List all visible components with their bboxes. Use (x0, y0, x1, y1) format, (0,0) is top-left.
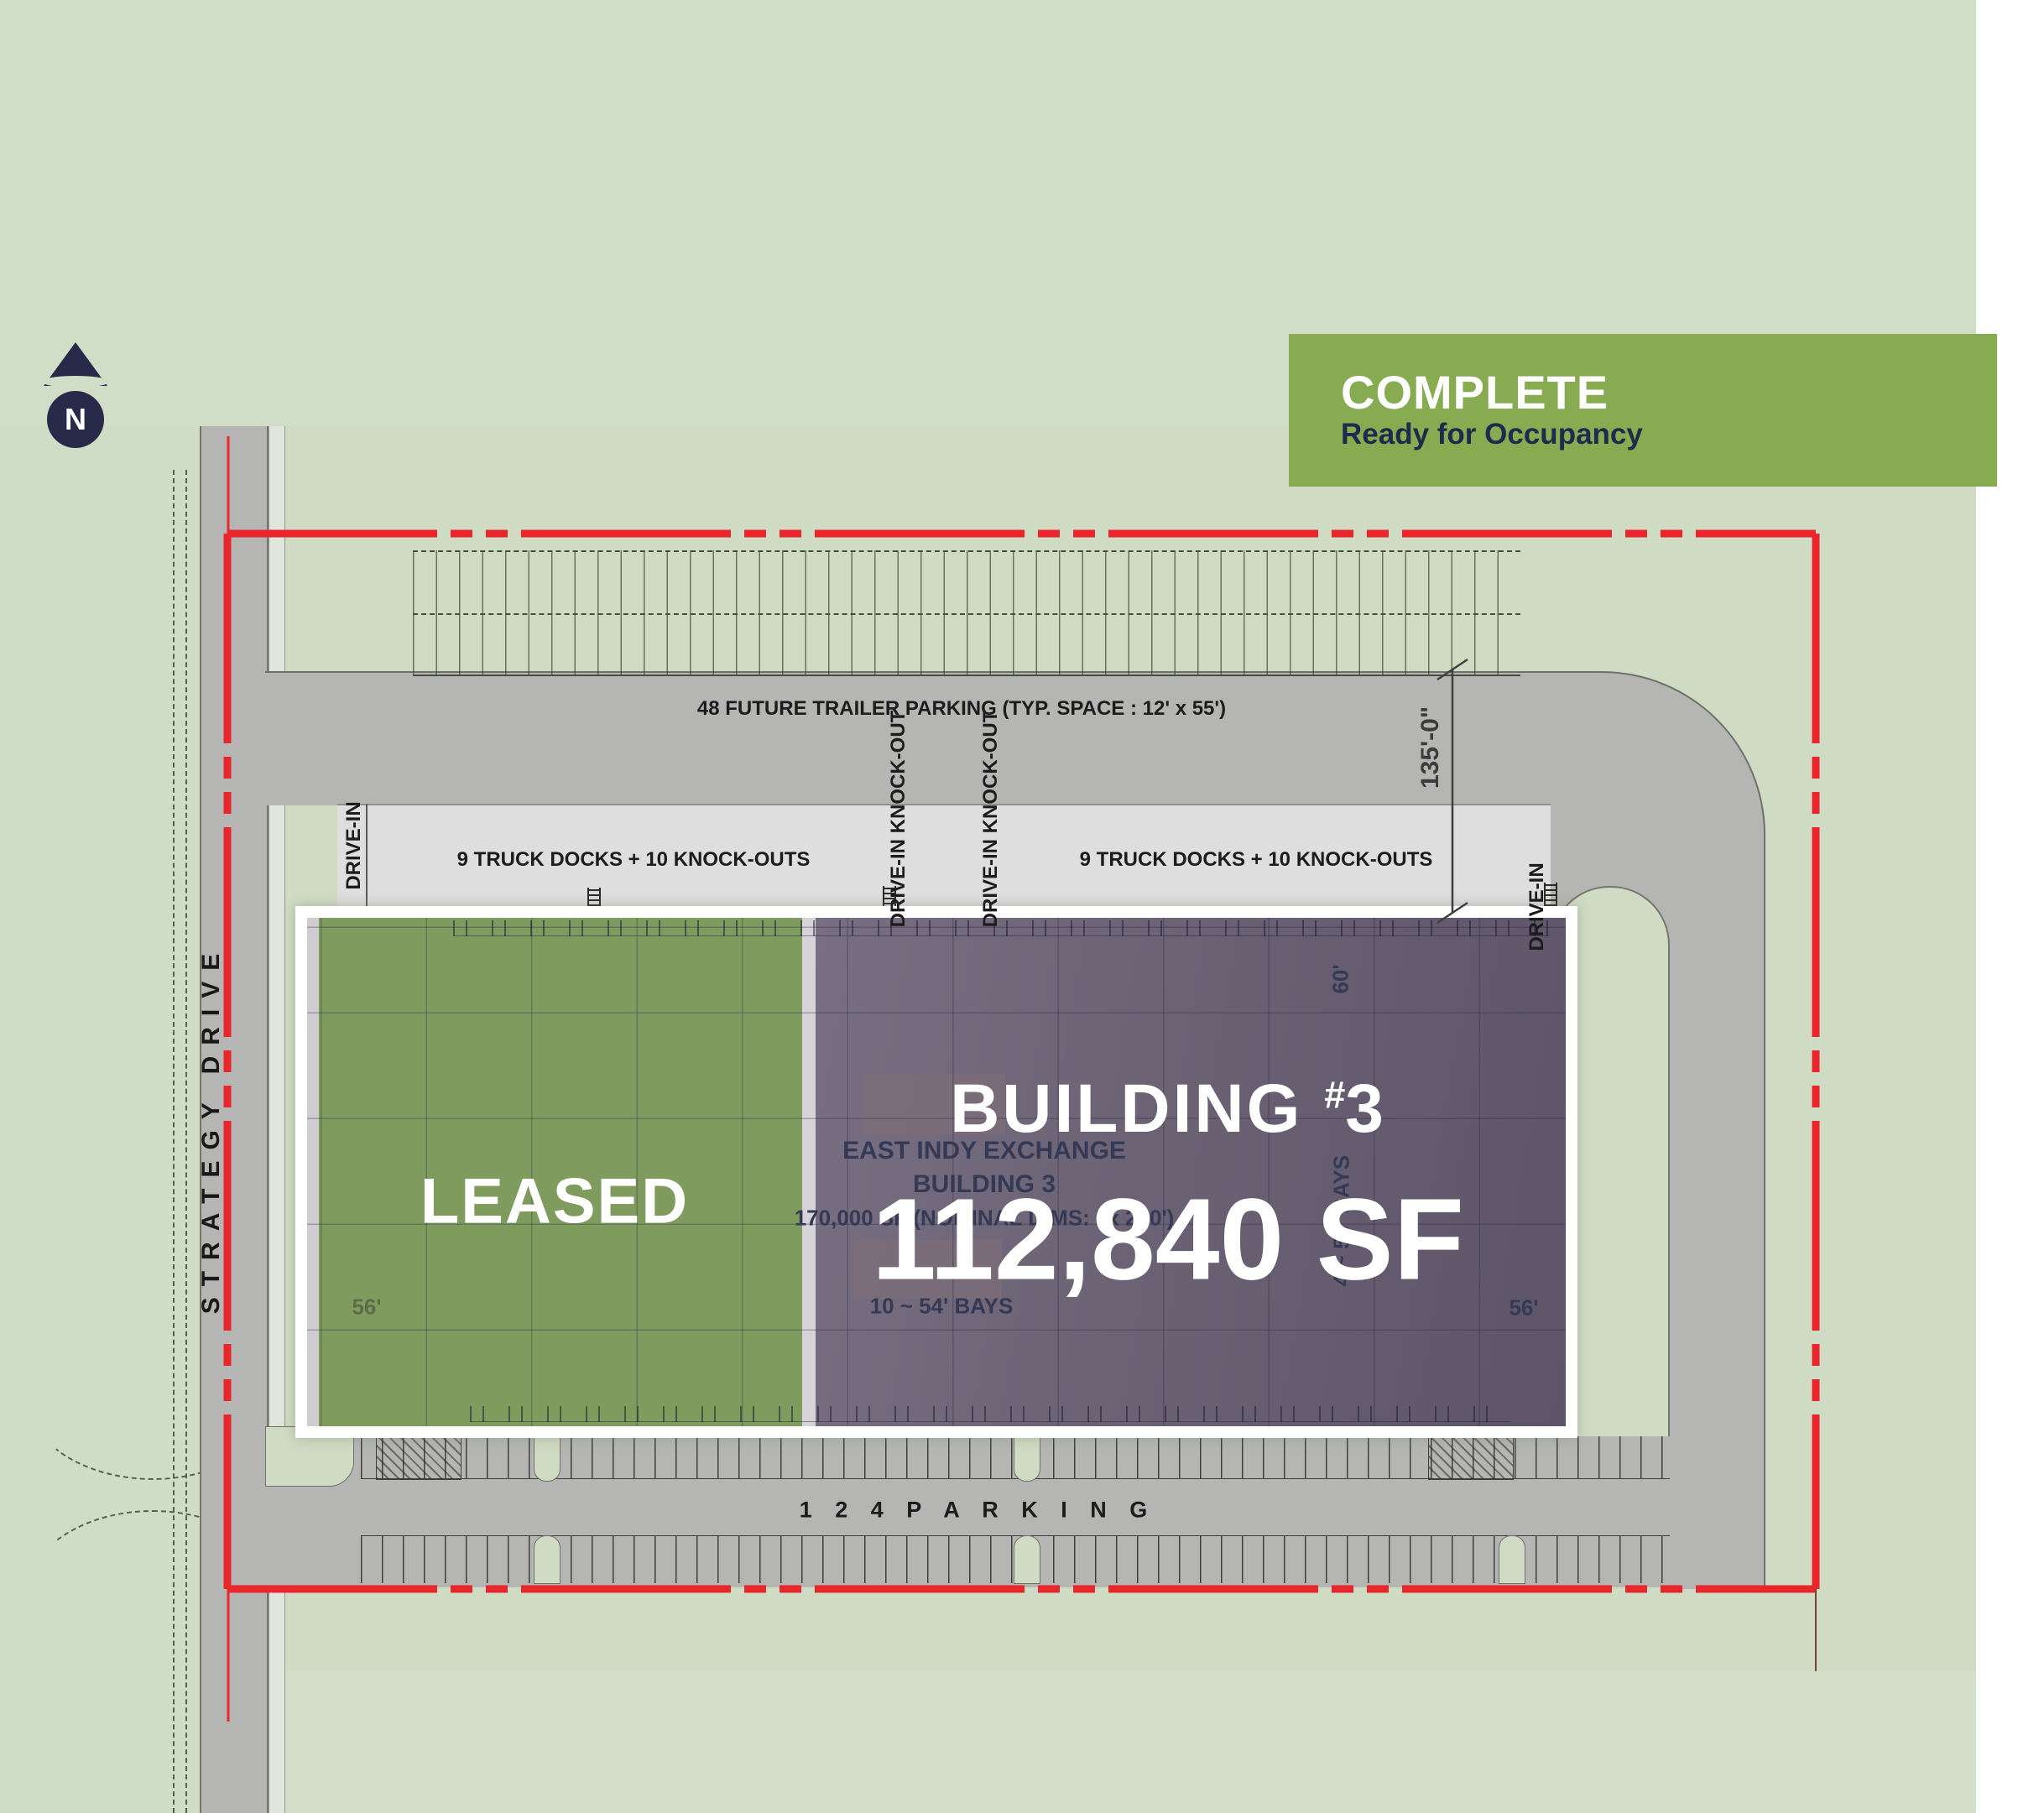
north-drive (265, 671, 1557, 805)
parking-island (1014, 1436, 1040, 1482)
street-name-label: STRATEGY DRIVE (197, 943, 226, 1315)
trailer-parking-stalls (413, 550, 1520, 676)
status-banner-title: COMPLETE (1341, 368, 1997, 418)
parking-island (534, 1436, 561, 1482)
building-sf-overlay: 112,840 SF (872, 1174, 1464, 1307)
parking-island (534, 1535, 561, 1584)
leased-overlay-label: LEASED (420, 1165, 689, 1238)
background-green-bottom (0, 1671, 1976, 1813)
ada-stalls-hatch (376, 1436, 461, 1480)
truck-docks-label-left: 9 TRUCK DOCKS + 10 KNOCK-OUTS (457, 848, 811, 872)
dim-56-left-label: 56' (352, 1295, 381, 1321)
sidewalk (269, 426, 285, 1813)
drive-in-knockout-label-2: DRIVE-IN KNOCK-OUT (979, 711, 1003, 928)
dim-56-right-label: 56' (1509, 1295, 1538, 1321)
ada-stalls-hatch (1428, 1436, 1514, 1480)
dim-60-label: 60' (1328, 964, 1354, 993)
status-banner-subtitle: Ready for Occupancy (1341, 417, 1997, 452)
drive-in-label-left: DRIVE-IN (342, 801, 366, 889)
building-hash: # (1324, 1074, 1345, 1117)
dock-doors-south (470, 1406, 1510, 1422)
trailer-parking-label: 48 FUTURE TRAILER PARKING (TYP. SPACE : … (697, 697, 1226, 721)
status-banner: COMPLETE Ready for Occupancy (1289, 334, 1997, 487)
parking-island (1499, 1535, 1525, 1584)
north-compass: N (47, 391, 104, 448)
drive-in-knockout-label-1: DRIVE-IN KNOCK-OUT (887, 711, 910, 928)
apron-edge-line (366, 804, 368, 918)
parking-count-label: 1 2 4 P A R K I N G (800, 1498, 1156, 1524)
drive-in-label-right: DRIVE-IN (1525, 862, 1549, 951)
north-label: N (65, 402, 86, 437)
building-word: BUILDING (950, 1071, 1302, 1147)
site-plan-canvas: STRATEGY DRIVE 48 FUTURE TRAILER PARKING… (0, 0, 2044, 1813)
truck-docks-label-right: 9 TRUCK DOCKS + 10 KNOCK-OUTS (1080, 848, 1433, 872)
building-number: 3 (1345, 1071, 1386, 1147)
building-3-overlay-title: BUILDING #3 (950, 1070, 1386, 1149)
parking-island (1014, 1535, 1040, 1584)
yard-depth-dimension: 135'-0" (1416, 706, 1445, 789)
north-arrow-gap (42, 376, 109, 388)
